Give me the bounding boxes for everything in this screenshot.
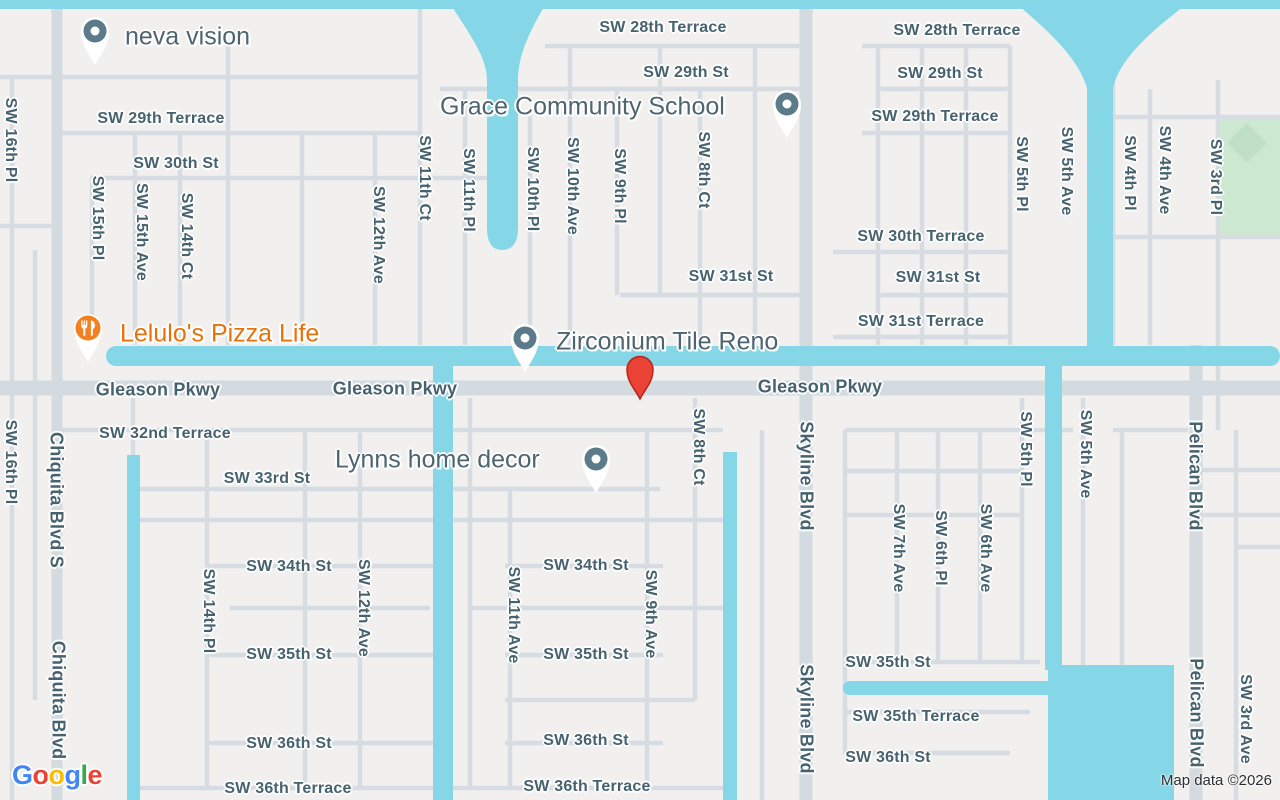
poi-label-lynns-home-decor[interactable]: Lynns home decor [335,446,540,475]
poi-label-neva-vision[interactable]: neva vision [125,23,250,52]
lake-bottom-right [1048,665,1174,800]
park-area [1218,117,1280,237]
logo-letter: G [12,760,33,790]
logo-letter: l [81,760,88,790]
logo-letter: e [88,760,103,790]
google-logo[interactable]: Google [12,760,102,791]
logo-letter: o [33,760,49,790]
map-attribution: Map data ©2026 [1161,772,1272,789]
logo-letter: o [49,760,65,790]
map-canvas[interactable]: SW 28th TerraceSW 28th TerraceSW 29th St… [0,0,1280,800]
canal-vertical-center [723,452,737,800]
poi-label-grace-community-school[interactable]: Grace Community School [440,93,725,122]
canal-vertical-left [127,455,140,800]
poi-label-lelulos-pizza-life[interactable]: Lelulo's Pizza Life [120,320,319,349]
poi-label-zirconium-tile-reno[interactable]: Zirconium Tile Reno [556,328,778,357]
canal-bottom-horizontal [843,681,1058,695]
logo-letter: g [65,760,81,790]
canal-vertical-right [1045,360,1062,670]
canal-vertical-center-left [433,352,453,800]
